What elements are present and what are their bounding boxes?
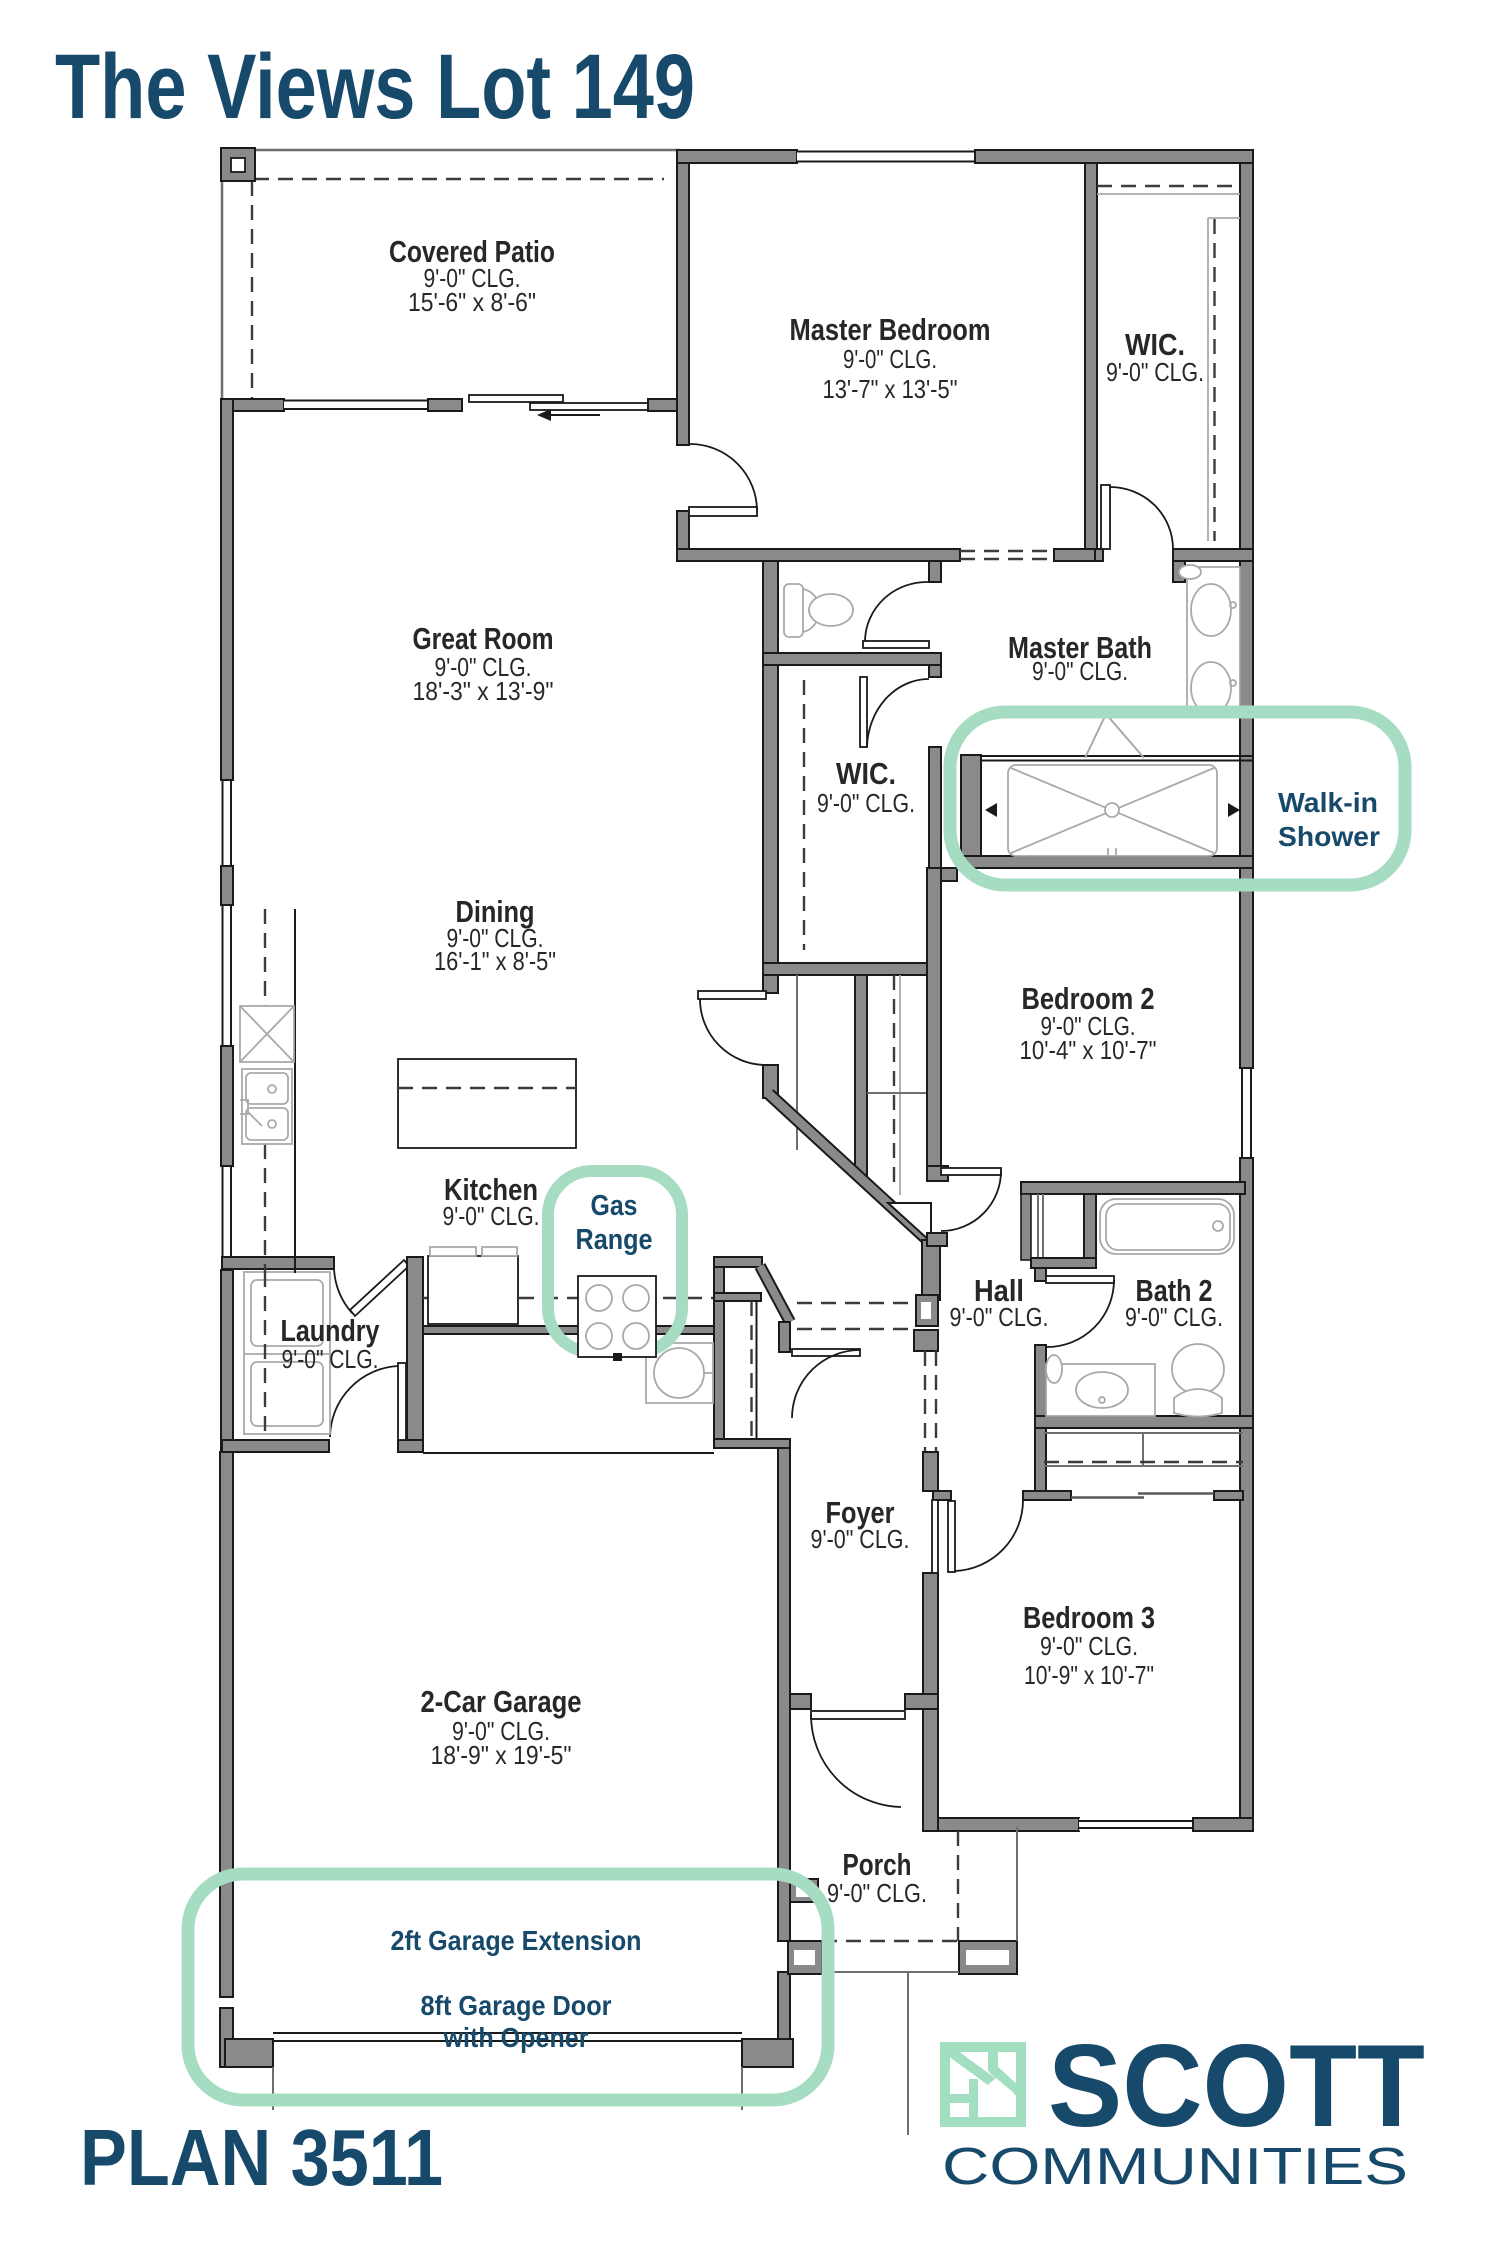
svg-text:13'-7" x 13'-5": 13'-7" x 13'-5" (823, 374, 958, 404)
svg-text:9'-0" CLG.: 9'-0" CLG. (827, 1878, 927, 1908)
svg-text:WIC.: WIC. (836, 756, 896, 791)
svg-text:9'-0" CLG.: 9'-0" CLG. (443, 1201, 540, 1231)
svg-text:Walk-in: Walk-in (1278, 787, 1378, 818)
svg-text:PLAN 3511: PLAN 3511 (80, 2113, 443, 2202)
svg-text:with Opener: with Opener (443, 2022, 589, 2053)
svg-text:Porch: Porch (843, 1847, 912, 1882)
svg-text:2-Car Garage: 2-Car Garage (421, 1684, 582, 1719)
svg-text:Shower: Shower (1278, 821, 1380, 852)
svg-text:Gas: Gas (591, 1190, 638, 1222)
svg-text:15'-6" x 8'-6": 15'-6" x 8'-6" (408, 287, 536, 317)
svg-text:9'-0" CLG.: 9'-0" CLG. (282, 1344, 379, 1374)
svg-text:Master Bedroom: Master Bedroom (790, 312, 991, 347)
svg-text:9'-0" CLG.: 9'-0" CLG. (1040, 1631, 1138, 1661)
svg-text:Laundry: Laundry (281, 1313, 381, 1348)
svg-text:9'-0" CLG.: 9'-0" CLG. (843, 344, 937, 374)
svg-text:18'-3" x 13'-9": 18'-3" x 13'-9" (413, 676, 554, 706)
svg-text:18'-9" x 19'-5": 18'-9" x 19'-5" (431, 1740, 572, 1770)
svg-text:9'-0" CLG.: 9'-0" CLG. (1032, 656, 1128, 686)
svg-text:10'-9" x 10'-7": 10'-9" x 10'-7" (1024, 1660, 1154, 1690)
svg-text:COMMUNITIES: COMMUNITIES (942, 2138, 1408, 2196)
svg-text:9'-0" CLG.: 9'-0" CLG. (950, 1302, 1049, 1332)
svg-text:9'-0" CLG.: 9'-0" CLG. (1125, 1302, 1223, 1332)
svg-text:SCOTT: SCOTT (1048, 2020, 1425, 2151)
svg-text:The Views Lot 149: The Views Lot 149 (55, 36, 695, 138)
svg-text:Range: Range (576, 1224, 653, 1256)
svg-text:9'-0" CLG.: 9'-0" CLG. (811, 1524, 910, 1554)
svg-text:Bedroom 3: Bedroom 3 (1023, 1600, 1155, 1635)
svg-text:9'-0" CLG.: 9'-0" CLG. (1106, 357, 1204, 387)
svg-text:16'-1" x 8'-5": 16'-1" x 8'-5" (434, 946, 556, 976)
svg-text:8ft Garage Door: 8ft Garage Door (421, 1990, 612, 2021)
svg-text:9'-0" CLG.: 9'-0" CLG. (817, 788, 915, 818)
svg-text:Great Room: Great Room (413, 621, 554, 656)
svg-text:10'-4" x 10'-7": 10'-4" x 10'-7" (1020, 1035, 1157, 1065)
svg-text:2ft Garage Extension: 2ft Garage Extension (391, 1925, 642, 1956)
